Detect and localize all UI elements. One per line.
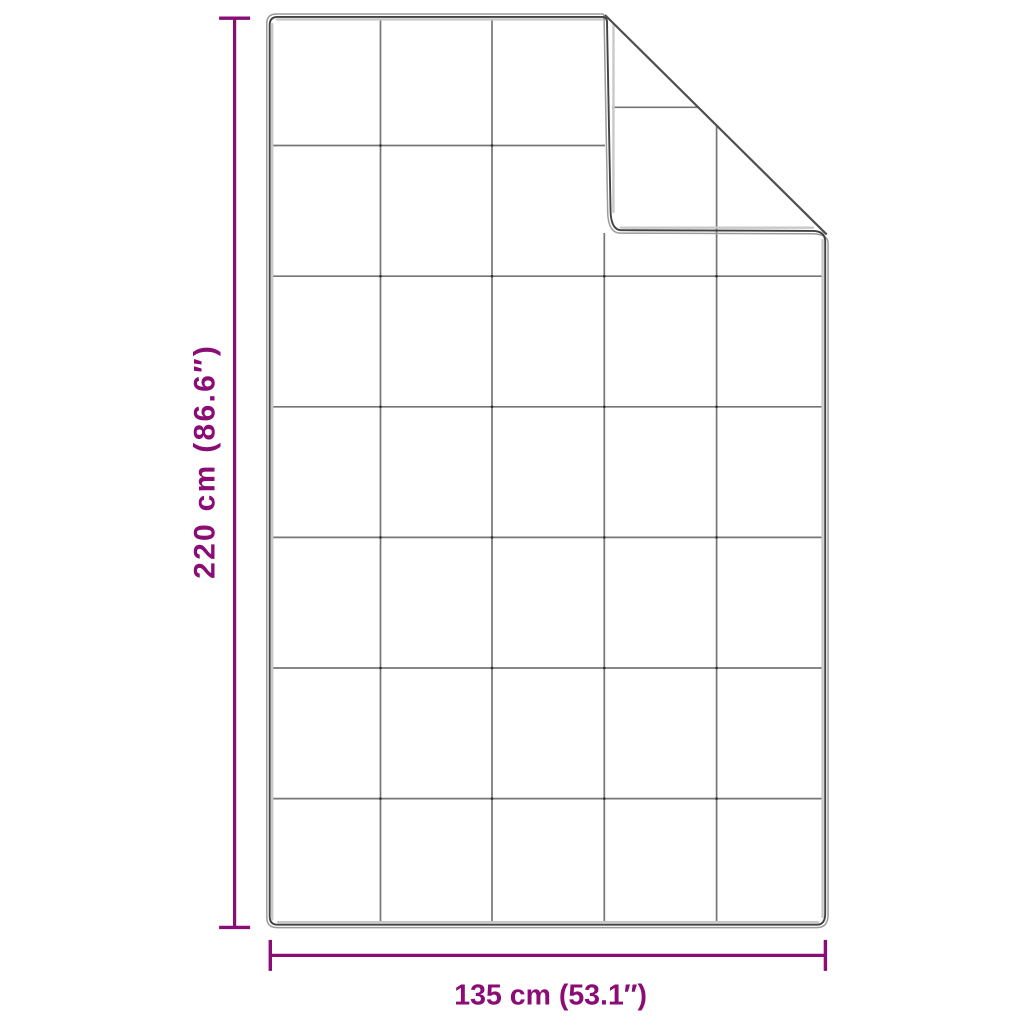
- svg-text:135 cm (53.1″): 135 cm (53.1″): [454, 979, 647, 1011]
- svg-text:220 cm (86.6″): 220 cm (86.6″): [189, 344, 222, 579]
